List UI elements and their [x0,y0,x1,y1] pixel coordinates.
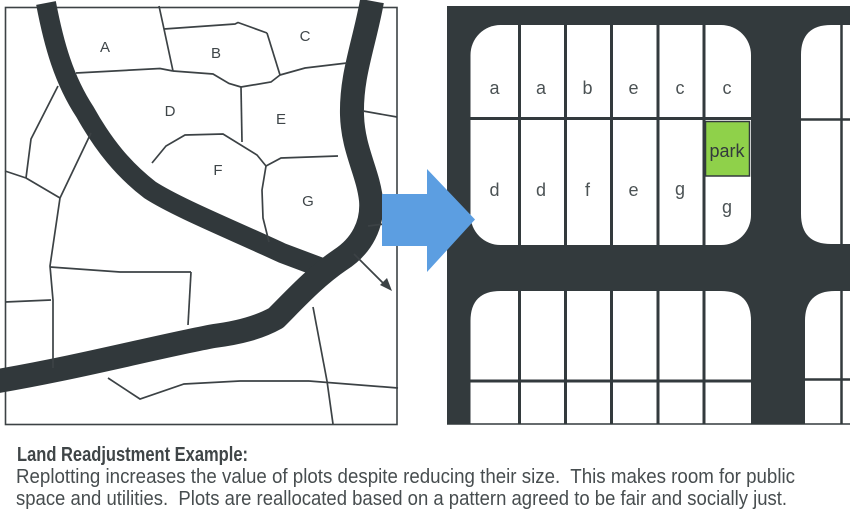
svg-text:D: D [165,103,176,120]
svg-text:park: park [709,141,745,161]
svg-text:b: b [582,78,592,98]
svg-text:d: d [536,180,546,200]
svg-text:space and utilities. Plots ar: space and utilities. Plots are reallocat… [16,488,787,510]
svg-text:F: F [213,162,222,179]
svg-text:Land Readjustment Example:: Land Readjustment Example: [17,444,248,466]
svg-text:B: B [211,45,221,62]
svg-text:d: d [489,180,499,200]
svg-text:g: g [722,197,732,217]
svg-text:e: e [628,180,638,200]
svg-text:e: e [628,78,638,98]
svg-text:A: A [100,39,110,56]
svg-text:Replotting increases the value: Replotting increases the value of plots … [16,466,795,488]
svg-text:c: c [676,78,685,98]
svg-text:C: C [300,28,311,45]
svg-text:g: g [675,179,685,199]
svg-text:E: E [276,111,286,128]
svg-text:G: G [302,193,314,210]
svg-text:a: a [536,78,547,98]
svg-text:c: c [723,78,732,98]
svg-text:a: a [489,78,500,98]
